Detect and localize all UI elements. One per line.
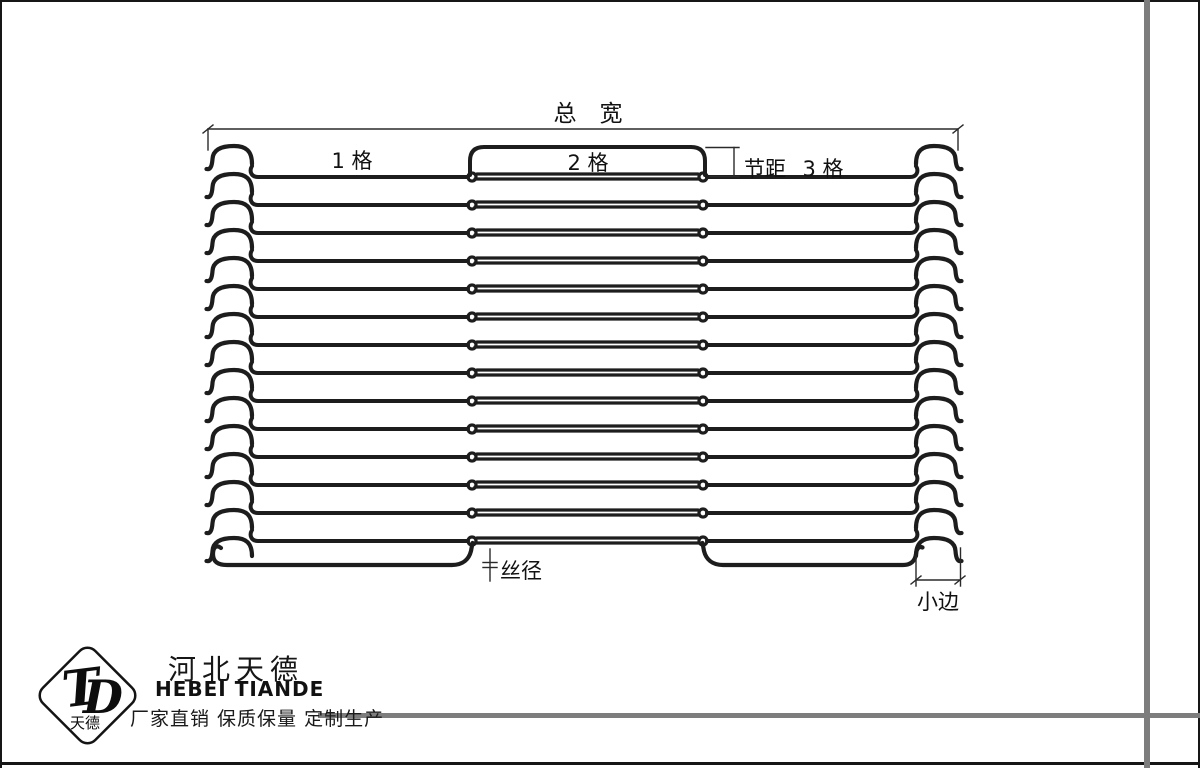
- company-name-en: HEBEI TIANDE: [155, 677, 324, 701]
- label-section-2: 2 格: [567, 151, 608, 175]
- label-wire-diameter: 丝径: [500, 559, 542, 583]
- footer: T D 天德 河北天德 HEBEI TIANDE 厂家直销 保质保量 定制生产: [0, 630, 1150, 760]
- company-tagline: 厂家直销 保质保量 定制生产: [130, 704, 384, 731]
- label-pitch: 节距: [744, 157, 786, 181]
- company-logo: T D 天德: [25, 633, 150, 758]
- belt-wires: [207, 146, 962, 565]
- label-small-edge: 小边: [917, 590, 959, 614]
- label-total-width: 总 宽: [554, 101, 623, 127]
- logo-caption: 天德: [70, 714, 100, 732]
- label-section-3: 3 格: [802, 157, 843, 181]
- dimension-lines: [203, 125, 965, 586]
- label-section-1: 1 格: [331, 149, 372, 173]
